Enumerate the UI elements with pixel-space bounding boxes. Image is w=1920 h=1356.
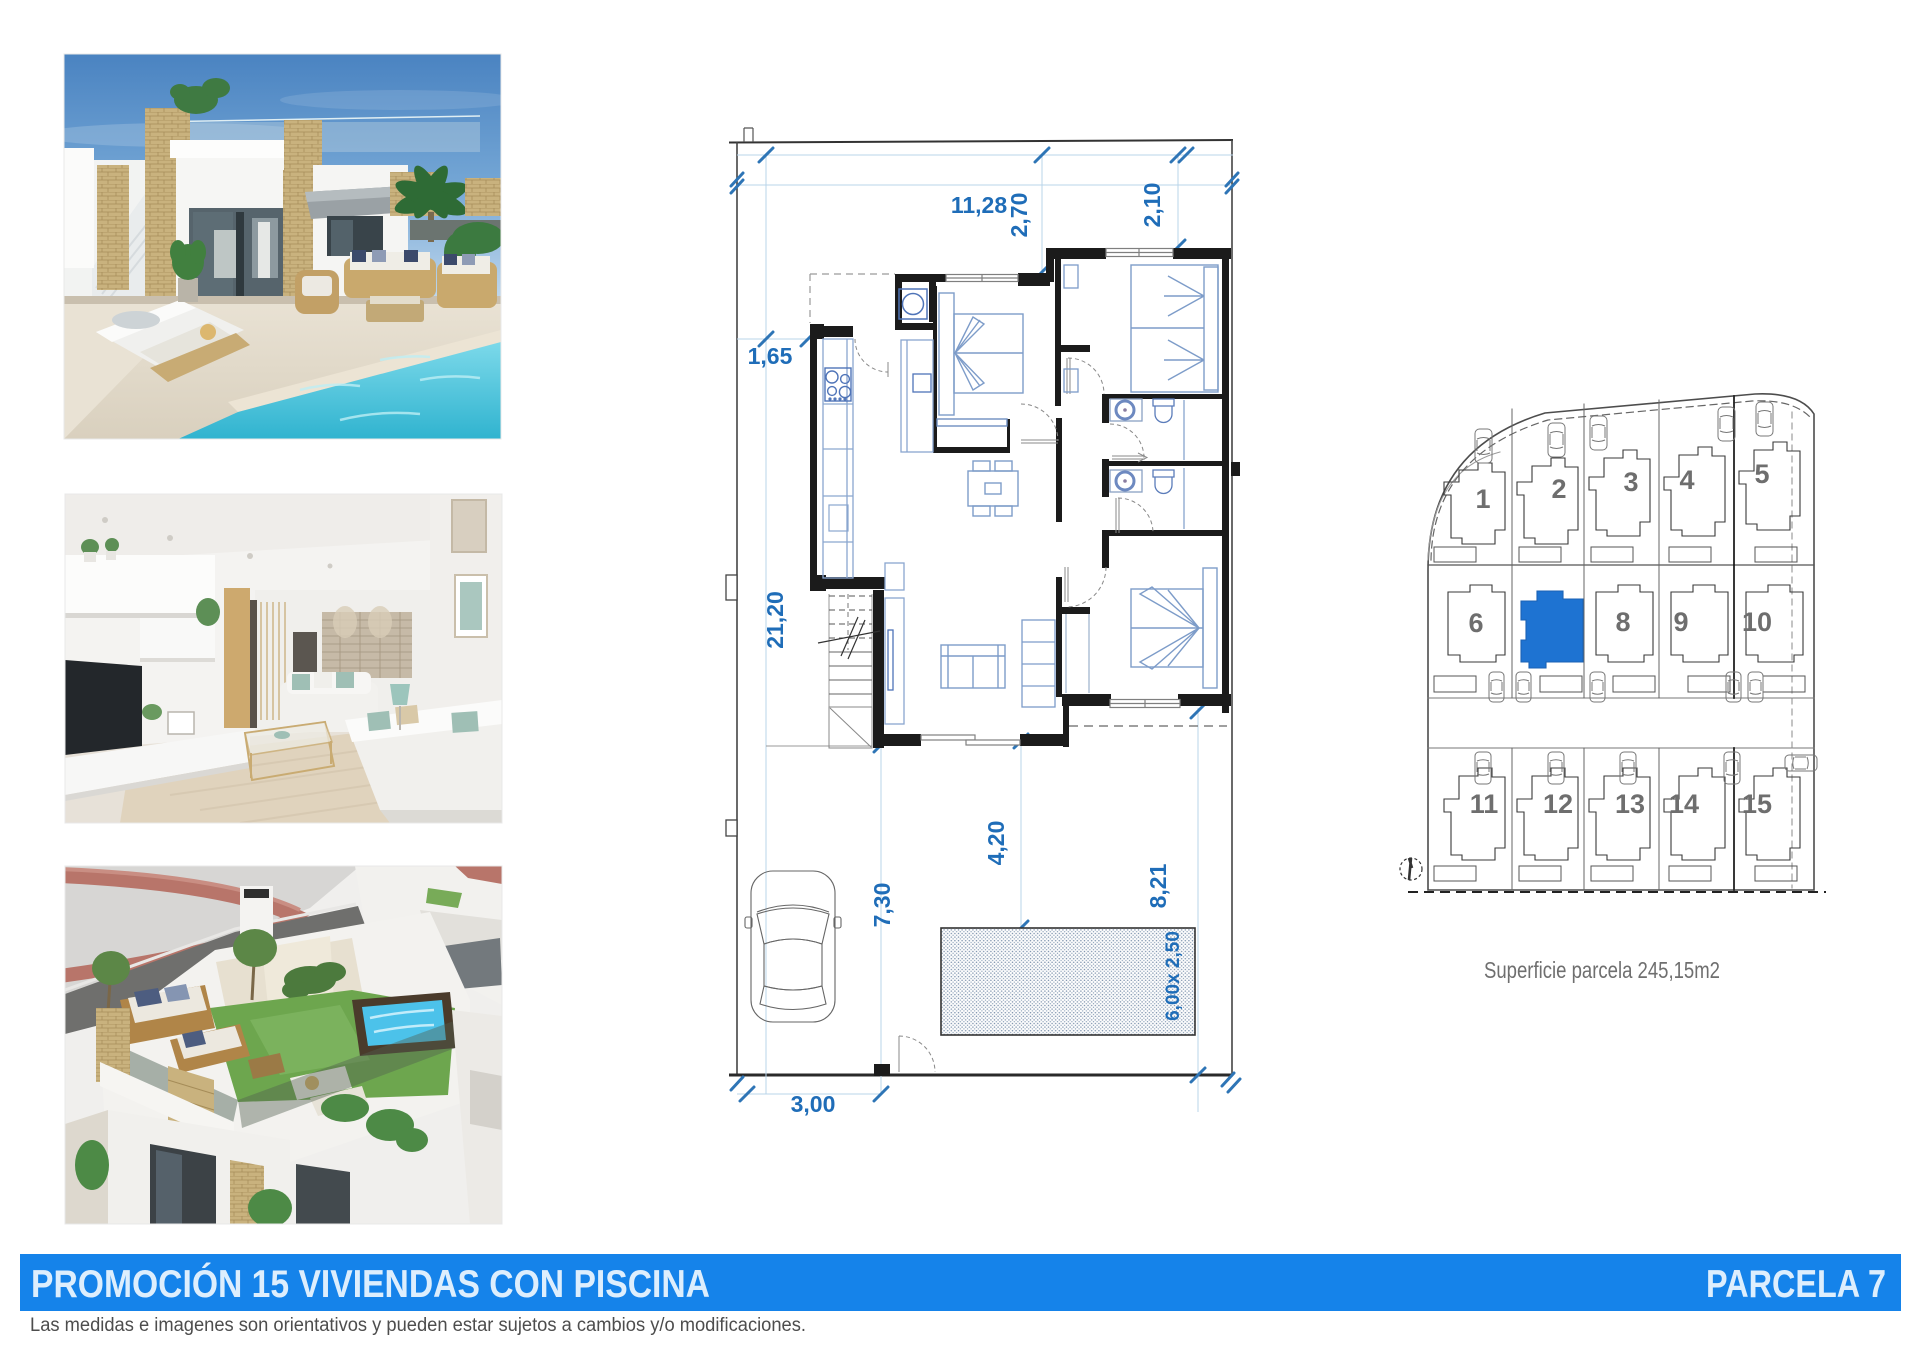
svg-text:14: 14 [1669,789,1699,819]
svg-text:5: 5 [1754,459,1769,489]
svg-text:3,00: 3,00 [791,1091,836,1117]
svg-text:6,00x 2,50: 6,00x 2,50 [1163,931,1184,1021]
svg-text:11,28: 11,28 [951,192,1007,218]
svg-text:PARCELA 7: PARCELA 7 [1706,1263,1886,1306]
svg-text:PROMOCIÓN 15 VIVIENDAS CON PIS: PROMOCIÓN 15 VIVIENDAS CON PISCINA [31,1262,710,1306]
svg-text:8: 8 [1615,607,1630,637]
svg-text:12: 12 [1543,789,1573,819]
svg-text:2,70: 2,70 [1006,193,1032,238]
svg-text:2,10: 2,10 [1139,183,1165,228]
svg-text:10: 10 [1742,607,1772,637]
svg-text:3: 3 [1623,467,1638,497]
svg-text:1,65: 1,65 [748,343,793,369]
svg-text:21,20: 21,20 [762,591,788,649]
svg-text:Las medidas e imagenes son ori: Las medidas e imagenes son orientativos … [30,1315,806,1336]
svg-text:9: 9 [1673,607,1688,637]
svg-text:2: 2 [1551,474,1566,504]
svg-text:Superficie parcela 245,15m2: Superficie parcela 245,15m2 [1484,957,1720,983]
svg-text:1: 1 [1475,484,1490,514]
svg-text:15: 15 [1742,789,1772,819]
svg-text:13: 13 [1615,789,1645,819]
svg-text:6: 6 [1468,608,1483,638]
svg-text:4: 4 [1679,465,1694,495]
svg-text:11: 11 [1470,789,1499,819]
